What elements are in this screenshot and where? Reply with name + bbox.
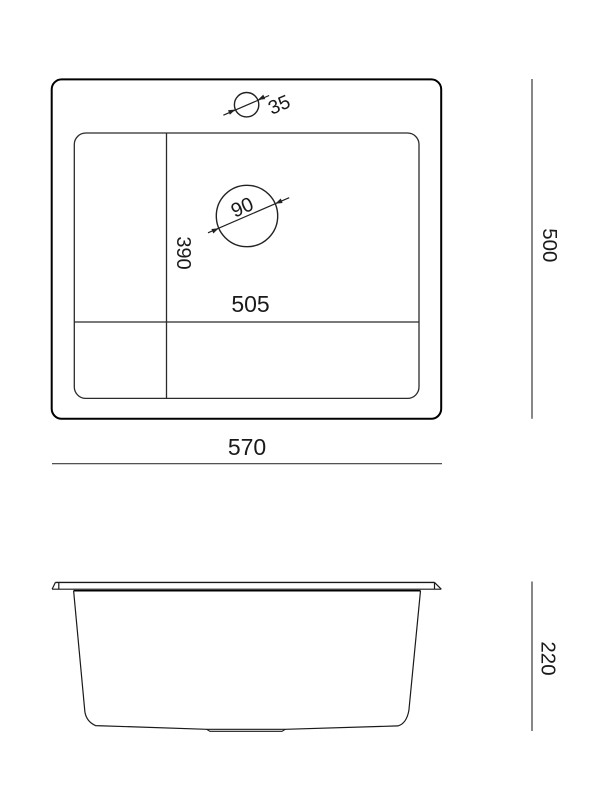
- svg-text:570: 570: [228, 434, 266, 460]
- svg-text:500: 500: [538, 228, 561, 262]
- svg-text:505: 505: [231, 291, 269, 317]
- svg-text:390: 390: [172, 236, 194, 269]
- svg-text:220: 220: [537, 641, 560, 675]
